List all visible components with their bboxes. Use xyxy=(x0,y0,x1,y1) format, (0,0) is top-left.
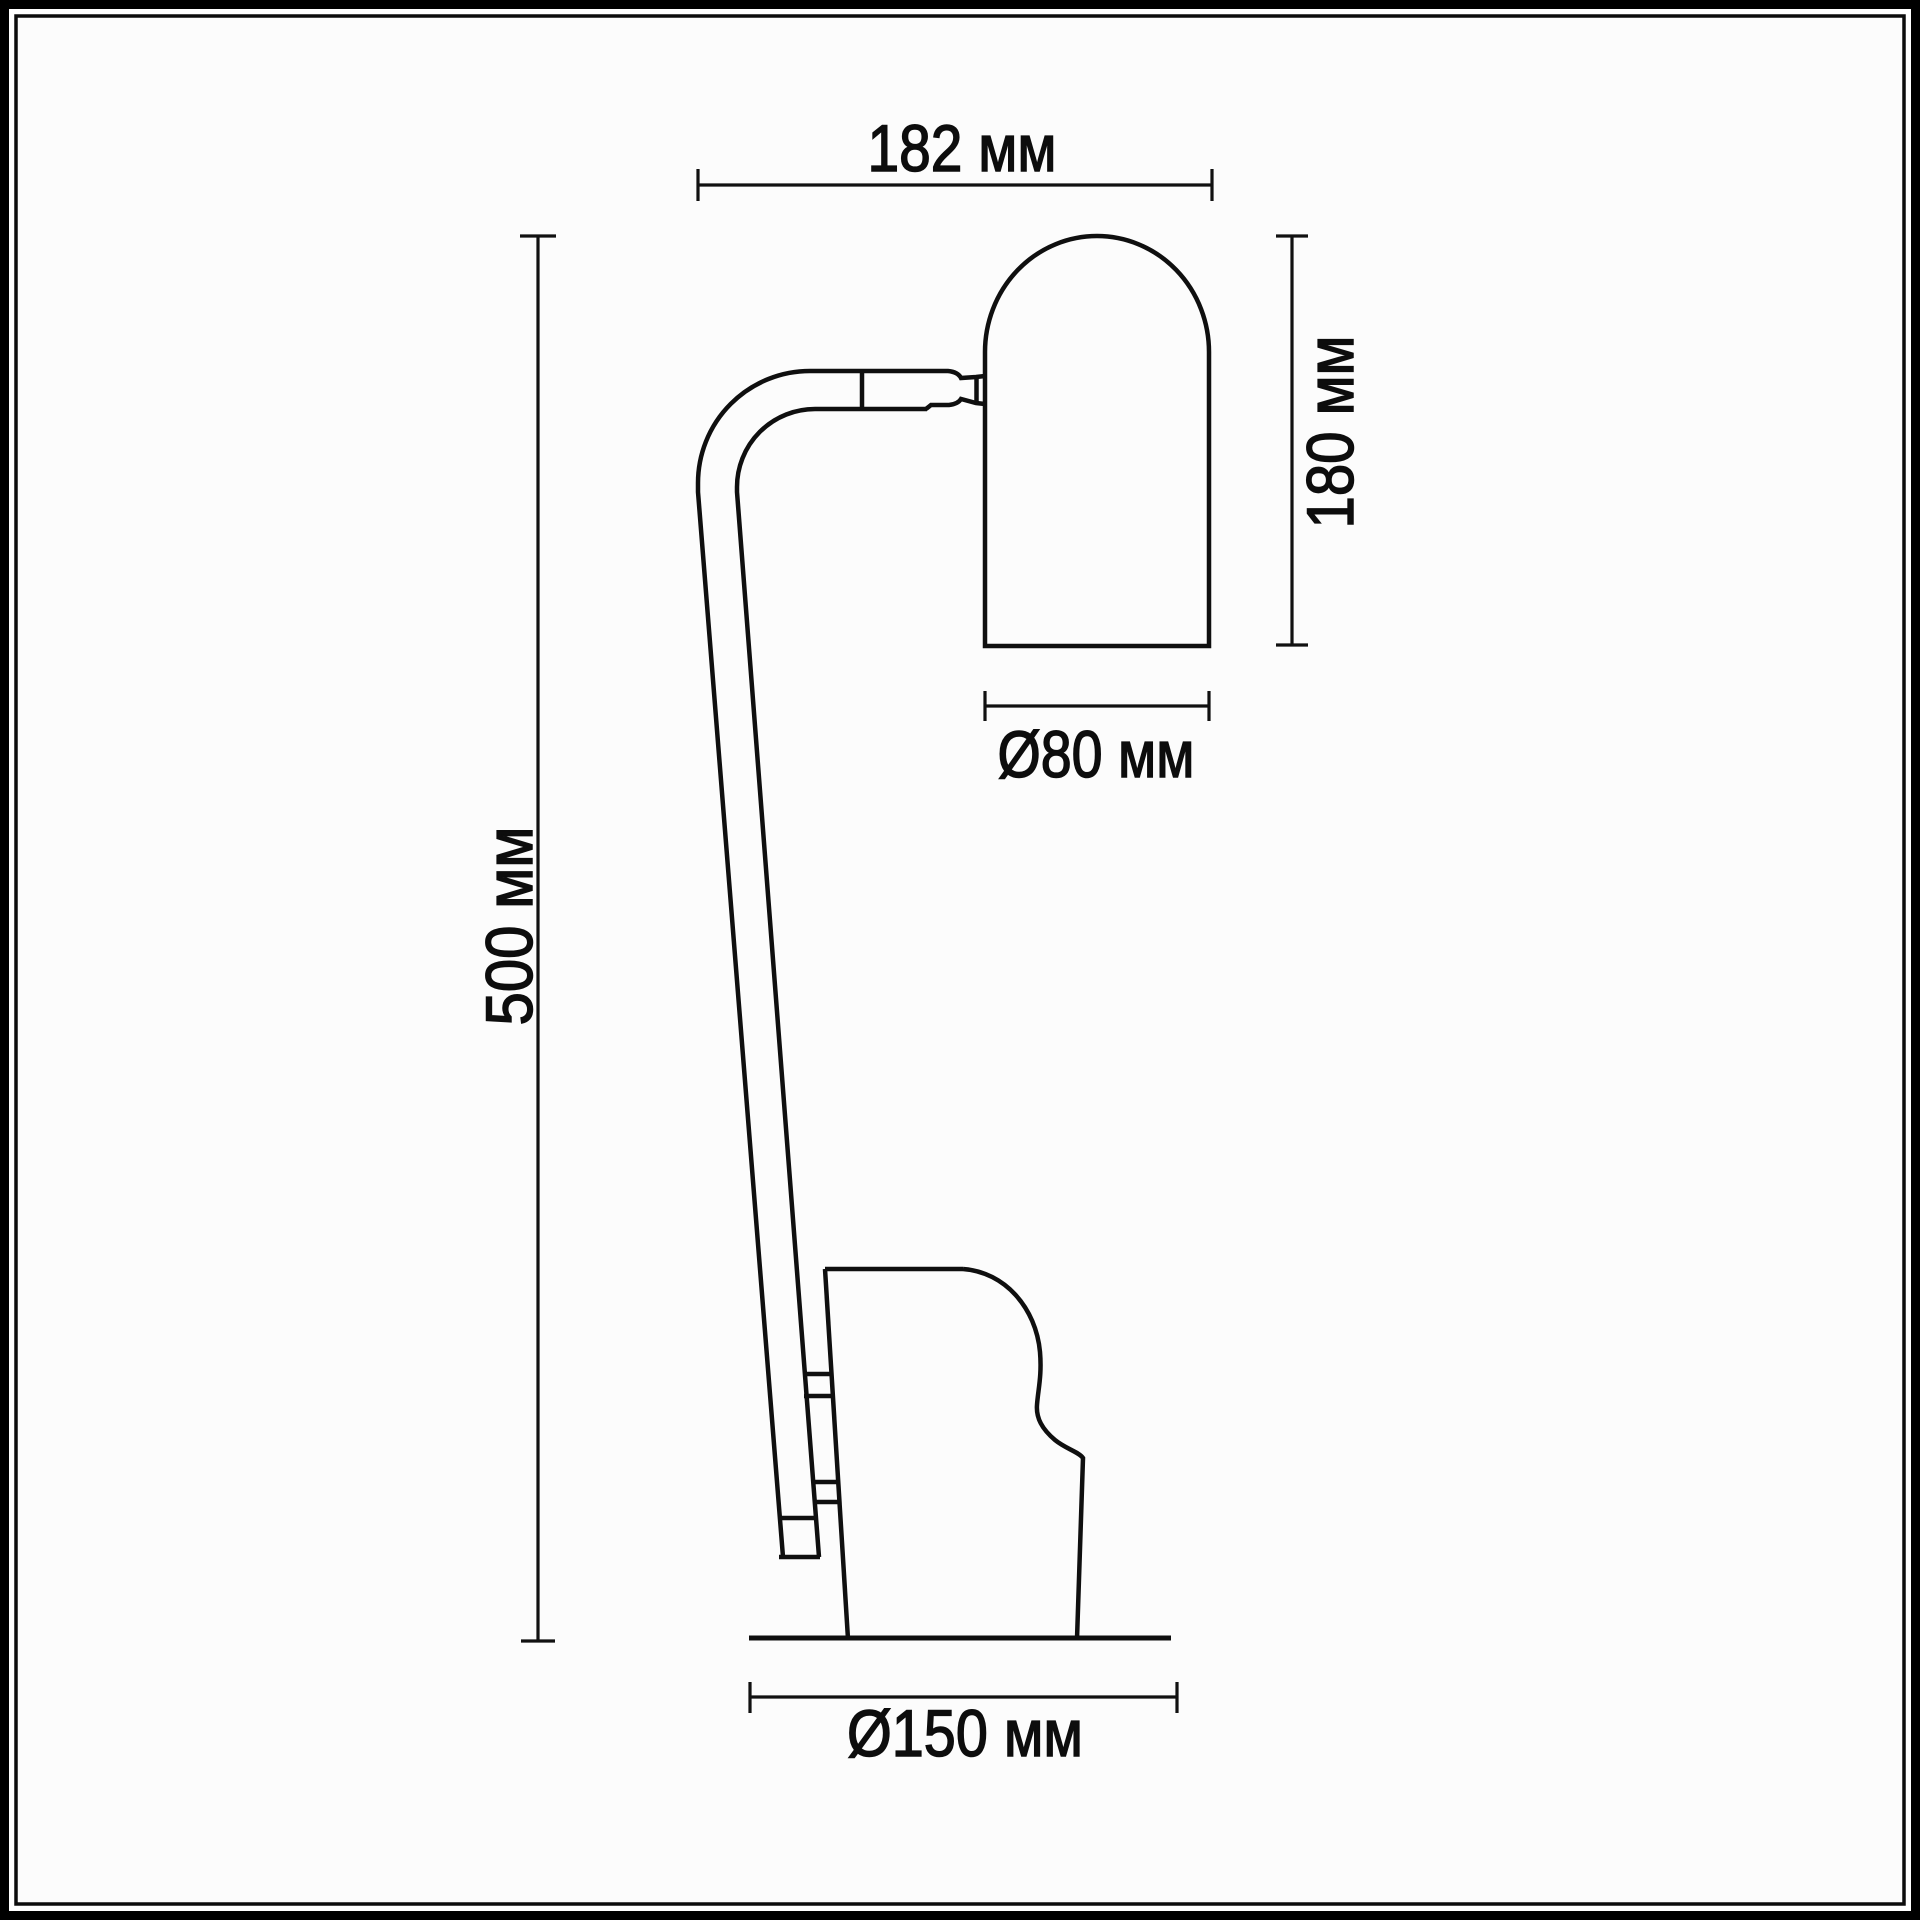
svg-text:Ø80 мм: Ø80 мм xyxy=(998,717,1195,791)
svg-text:500 мм: 500 мм xyxy=(472,827,546,1026)
svg-text:180 мм: 180 мм xyxy=(1293,336,1367,529)
svg-text:Ø150 мм: Ø150 мм xyxy=(847,1696,1083,1770)
svg-text:182 мм: 182 мм xyxy=(868,111,1057,185)
